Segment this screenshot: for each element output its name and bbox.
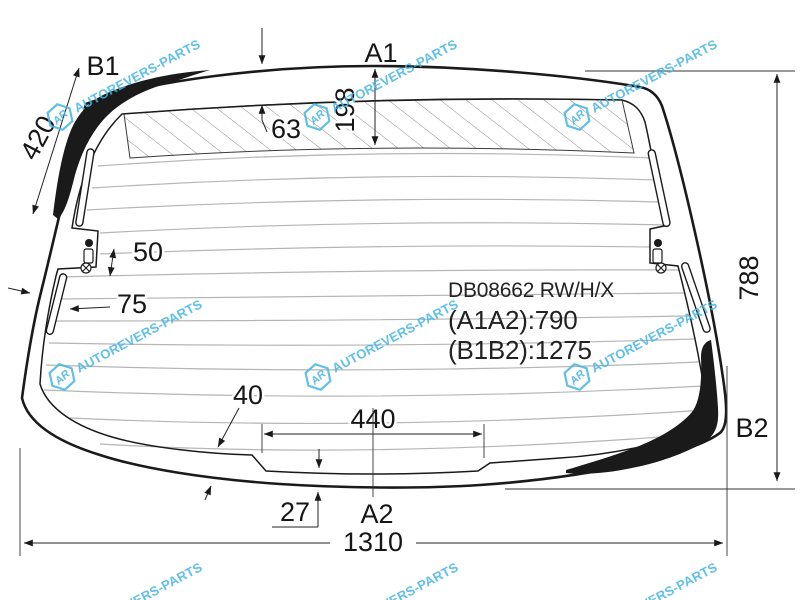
- part-code: DB08662 RW/H/X: [448, 279, 614, 302]
- point-label-a2: A2: [360, 499, 393, 529]
- point-label-b2: B2: [735, 413, 768, 443]
- terminal-dot-icon: [654, 239, 662, 247]
- terminal-dot-icon: [85, 239, 93, 247]
- watermark: AR AUTOREVERS-PARTS: [557, 553, 723, 600]
- watermark: AR AUTOREVERS-PARTS: [42, 553, 208, 600]
- part-dist-b1b2: (B1B2):1275: [448, 335, 592, 365]
- bolt-icon: [656, 263, 666, 273]
- watermark: AR AUTOREVERS-PARTS: [298, 553, 464, 600]
- point-label-b1: B1: [86, 51, 119, 81]
- watermark-text: AUTOREVERS-PARTS: [588, 559, 719, 600]
- rear-window-diagram: 420 198 63 50 75 40 440 27: [0, 0, 800, 600]
- dim-63-label: 63: [271, 114, 301, 144]
- dim-788-label: 788: [734, 255, 764, 300]
- watermark-text: AUTOREVERS-PARTS: [329, 559, 460, 600]
- watermark-text: AUTOREVERS-PARTS: [73, 559, 204, 600]
- dim-1310-label: 1310: [343, 527, 403, 557]
- point-label-a1: A1: [364, 38, 397, 68]
- dim-27-label: 27: [280, 497, 310, 527]
- dim-50-label: 50: [133, 237, 163, 267]
- bolt-icon: [81, 263, 91, 273]
- part-dist-a1a2: (A1A2):790: [448, 305, 578, 335]
- dim-40-label: 40: [233, 380, 263, 410]
- dim-75-label: 75: [117, 289, 147, 319]
